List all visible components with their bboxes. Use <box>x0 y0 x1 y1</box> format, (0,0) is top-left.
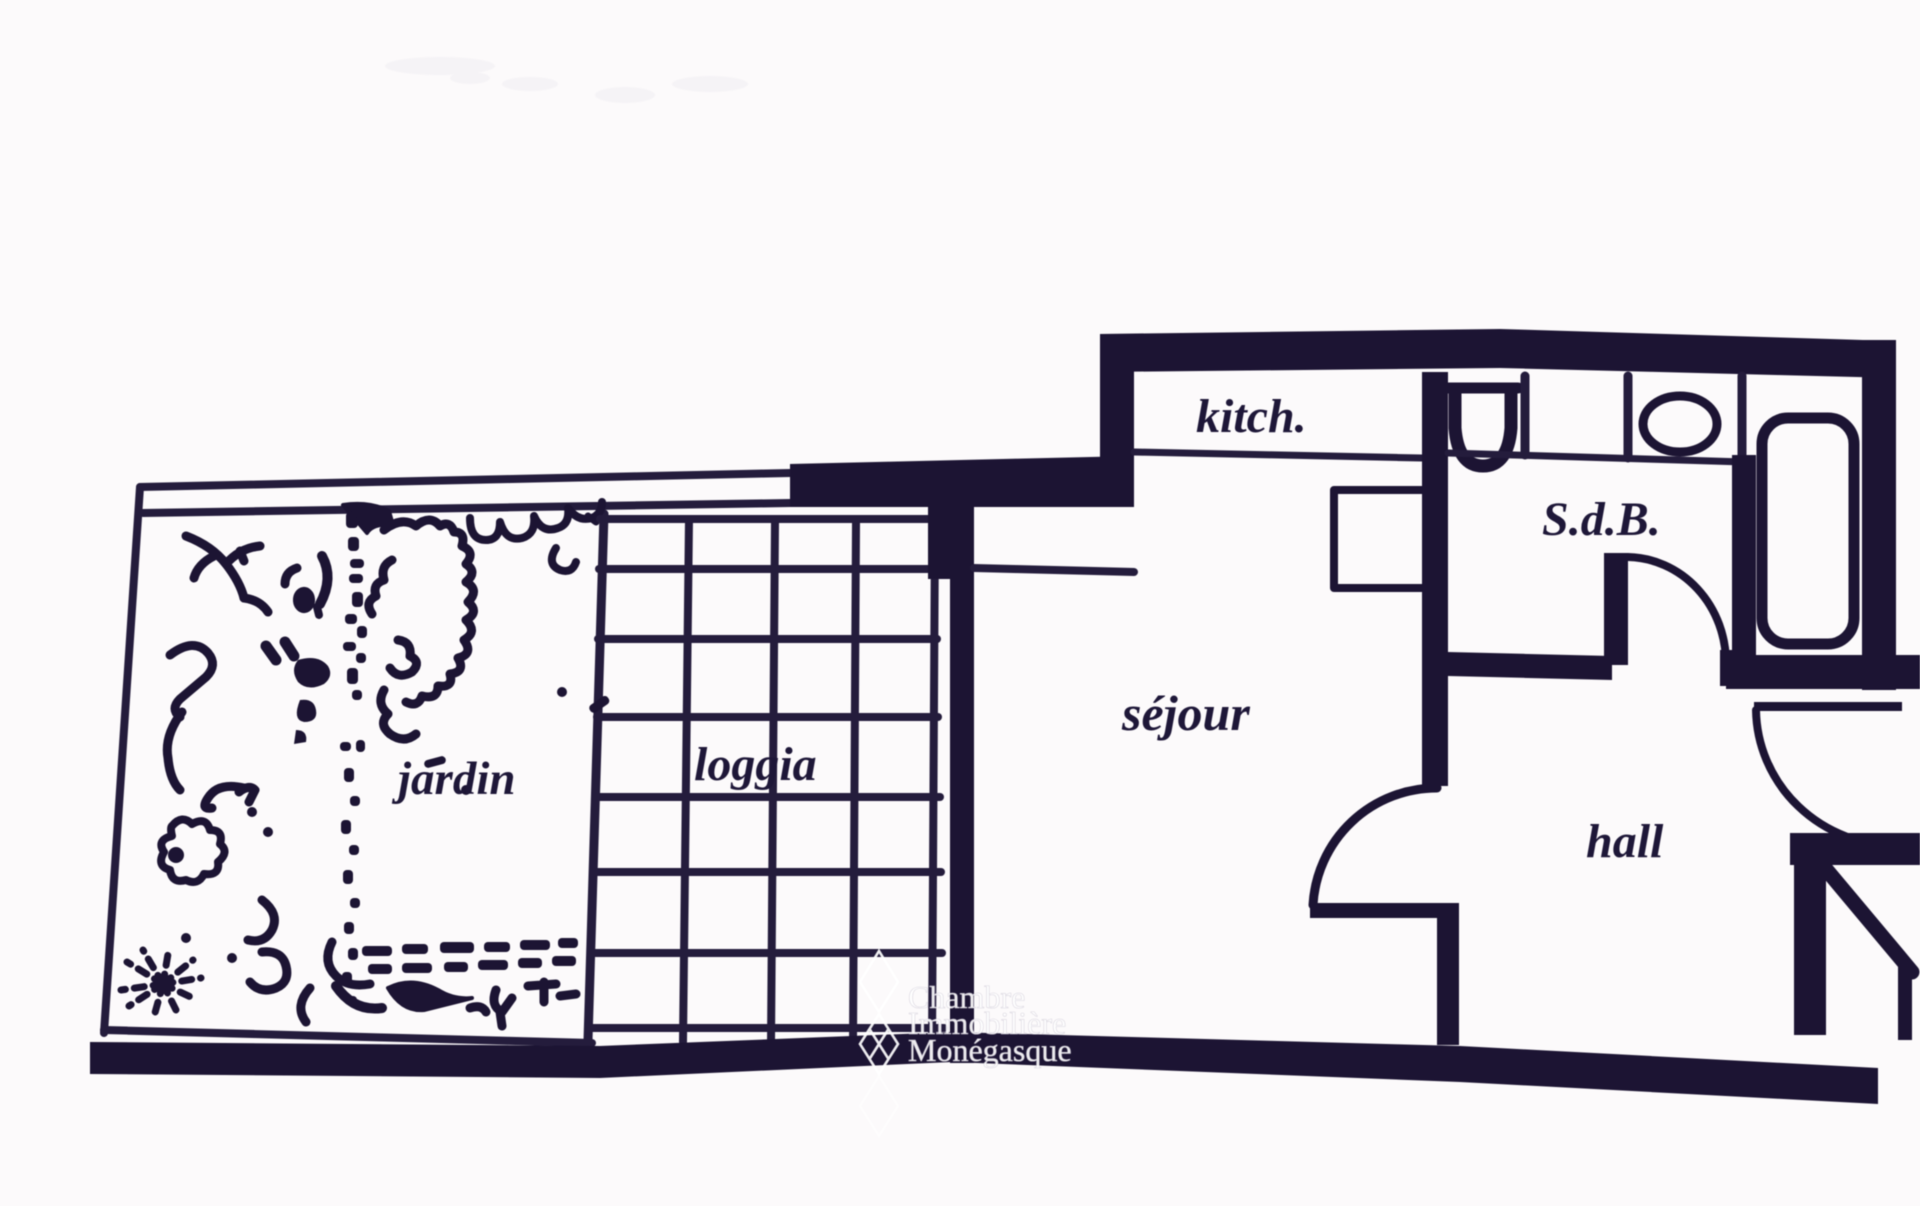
svg-text:séjour: séjour <box>1121 685 1250 741</box>
svg-text:Monégasque: Monégasque <box>908 1032 1072 1068</box>
svg-text:jardin: jardin <box>391 753 516 805</box>
svg-text:S.d.B.: S.d.B. <box>1542 493 1661 546</box>
svg-text:loggia: loggia <box>694 738 817 791</box>
svg-text:kitch.: kitch. <box>1196 390 1307 443</box>
svg-text:hall: hall <box>1586 815 1664 868</box>
